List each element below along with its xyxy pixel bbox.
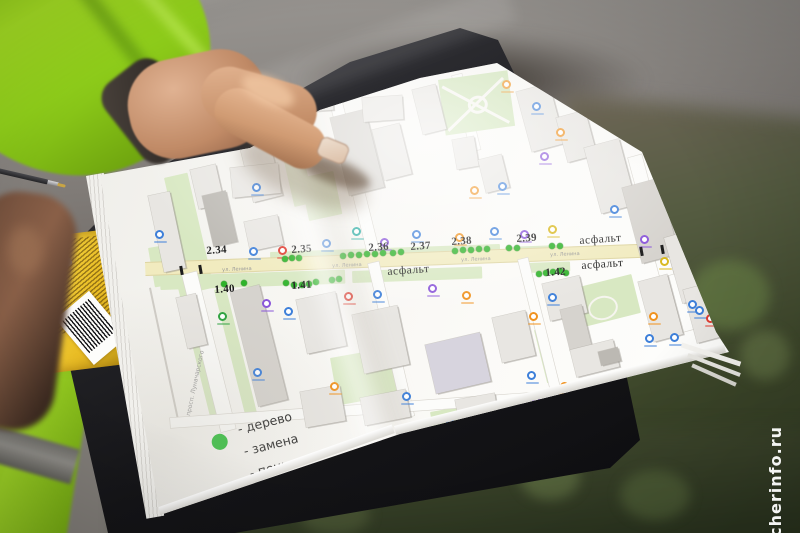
- photo-scene: ул. Ленинаул. Ленинаул. Ленинаул. Ленина…: [0, 0, 800, 533]
- watermark: cherinfo.ru: [766, 426, 785, 533]
- hand-on-map: [0, 0, 800, 533]
